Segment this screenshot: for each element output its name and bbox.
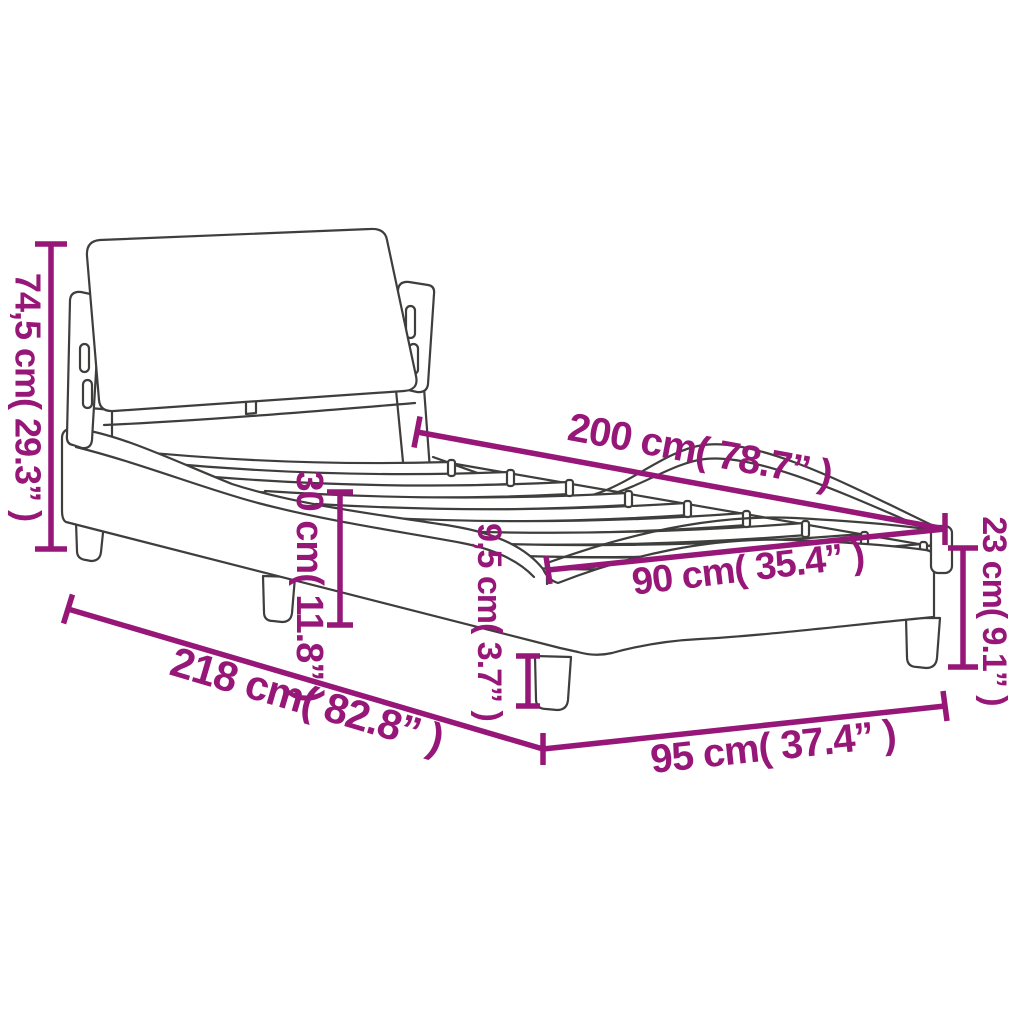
leg-foot-near	[535, 656, 571, 710]
headboard-post-right	[396, 388, 430, 472]
slat-end-cap	[566, 480, 573, 496]
headboard-cushion-face	[87, 229, 417, 411]
headboard-cushion-tag	[246, 402, 256, 414]
headboard-cushion	[87, 229, 417, 425]
dimension-label-foot-height: 23 cm( 9.1” )	[975, 516, 1013, 705]
leg-foot-far	[906, 618, 940, 668]
dimension-label-side-height: 30 cm( 11.8” )	[288, 470, 330, 701]
diagram-canvas: 74,5 cm( 29.3” ) 200 cm( 78.7” ) 30 cm( …	[0, 0, 1024, 1024]
dimension-label-leg-height: 9,5 cm( 3.7” )	[470, 523, 508, 721]
slat-end-cap	[507, 470, 514, 486]
slat-end-cap	[625, 491, 632, 507]
slat-end-cap	[802, 521, 809, 537]
slat-end-cap	[684, 501, 691, 517]
dimension-label-total-height: 74,5 cm( 29.3” )	[8, 273, 49, 521]
slat-end-cap	[448, 460, 455, 476]
bed-frame-dimension-diagram: 74,5 cm( 29.3” ) 200 cm( 78.7” ) 30 cm( …	[0, 0, 1024, 1024]
